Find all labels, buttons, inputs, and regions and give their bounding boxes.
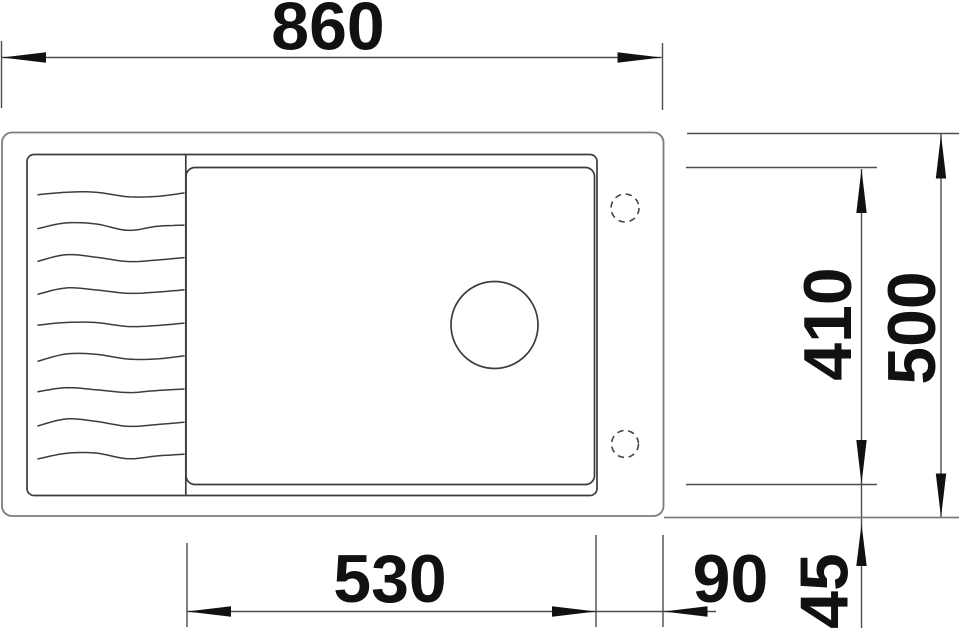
svg-text:45: 45 bbox=[787, 553, 863, 628]
svg-text:410: 410 bbox=[790, 267, 866, 380]
svg-text:500: 500 bbox=[874, 271, 950, 384]
svg-text:860: 860 bbox=[271, 0, 384, 65]
svg-text:90: 90 bbox=[693, 541, 769, 617]
svg-text:530: 530 bbox=[333, 541, 446, 617]
